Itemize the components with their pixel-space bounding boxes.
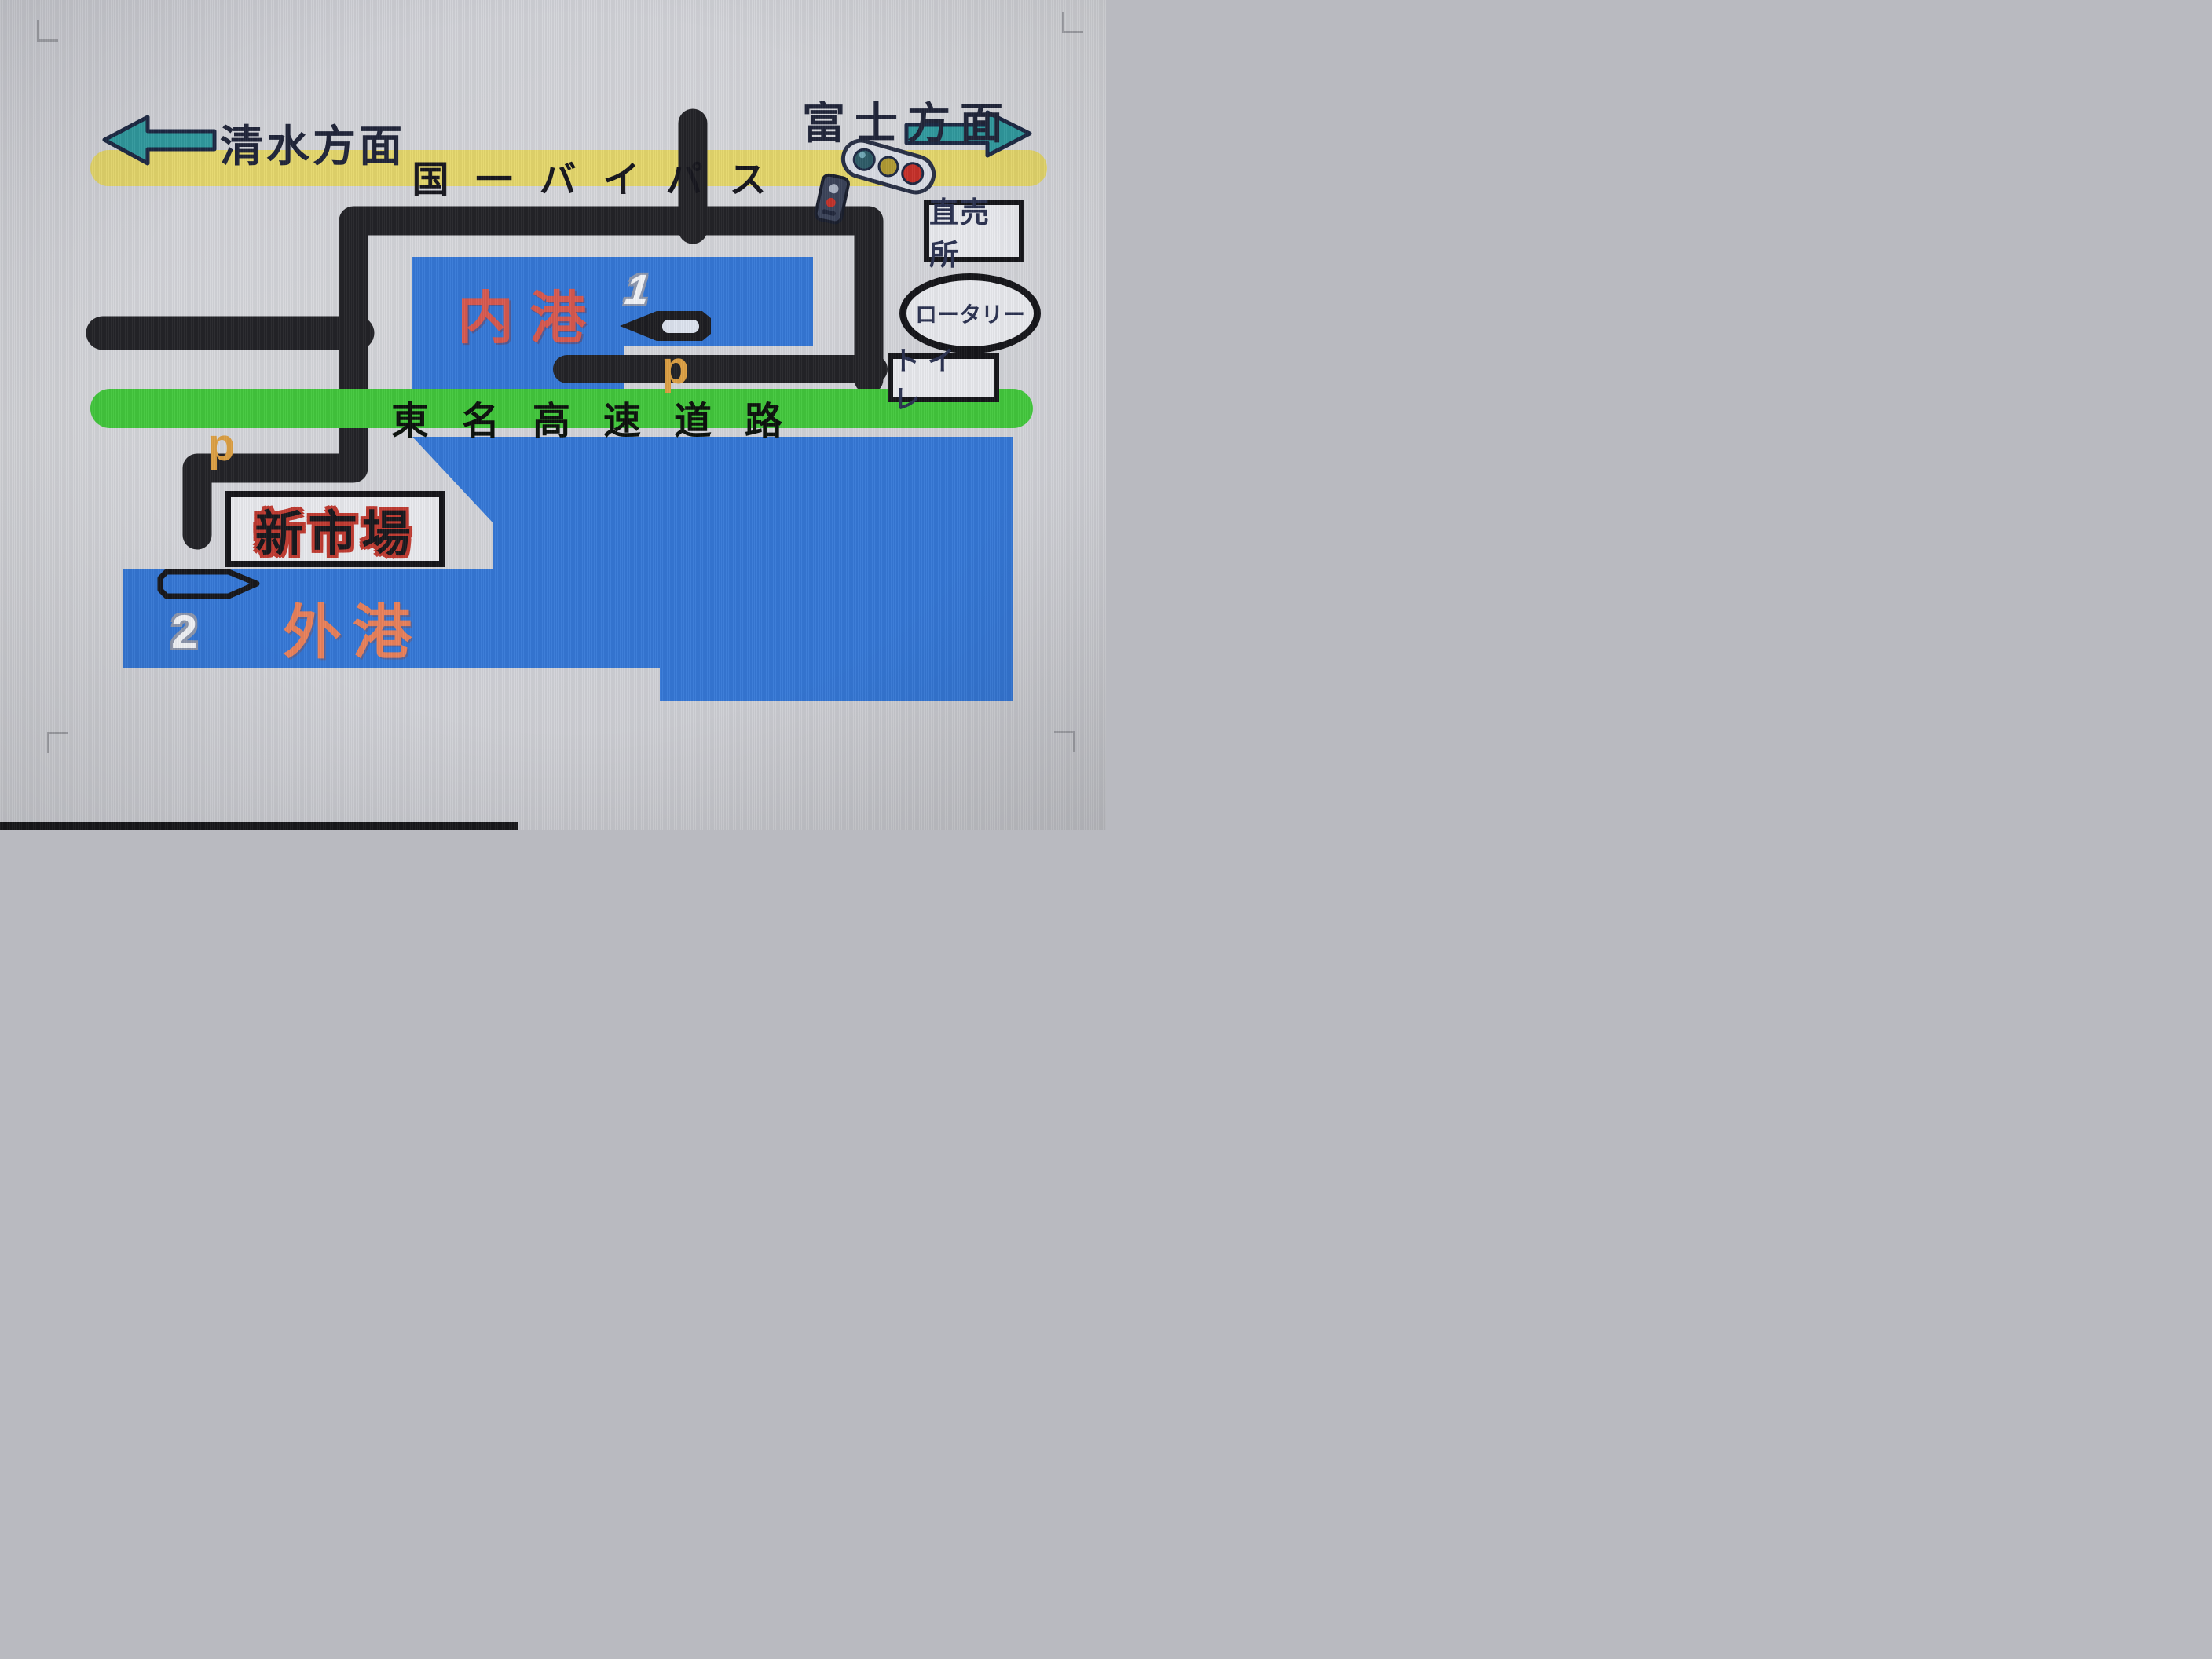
direction-east-label: 富士方面 [802, 88, 1013, 151]
toilet-box: トイレ [888, 353, 999, 402]
direction-west-label: 清水方面 [220, 111, 405, 174]
parking-upper-marker: p [661, 346, 689, 391]
outer-harbor-label: 外港 [283, 584, 423, 670]
rotary-label: ロータリー [915, 298, 1025, 329]
crop-mark-top-left [37, 20, 58, 42]
new-market-label: 新市場 [255, 494, 415, 565]
inner-harbor-label: 内港 [457, 272, 602, 354]
map-photo: 清水方面 富士方面 国一バイパス 東名高速道路 内港 外港 1 2 p p 直売… [0, 0, 1106, 829]
crop-mark-top-right [1062, 12, 1083, 33]
parking-lower-marker: p [207, 423, 235, 468]
direct-sales-box: 直売所 [924, 200, 1024, 262]
photo-edge-strip [0, 822, 518, 829]
crop-mark-bottom-right [1054, 731, 1075, 752]
direct-sales-label: 直売所 [929, 189, 1019, 273]
toilet-label: トイレ [893, 339, 994, 416]
expressway-road-label: 東名高速道路 [375, 390, 831, 445]
pier-2-number: 2 [171, 605, 197, 659]
bypass-road-label: 国一バイパス [390, 149, 815, 203]
crop-mark-bottom-left [47, 732, 68, 753]
new-market-box: 新市場 [225, 491, 445, 567]
